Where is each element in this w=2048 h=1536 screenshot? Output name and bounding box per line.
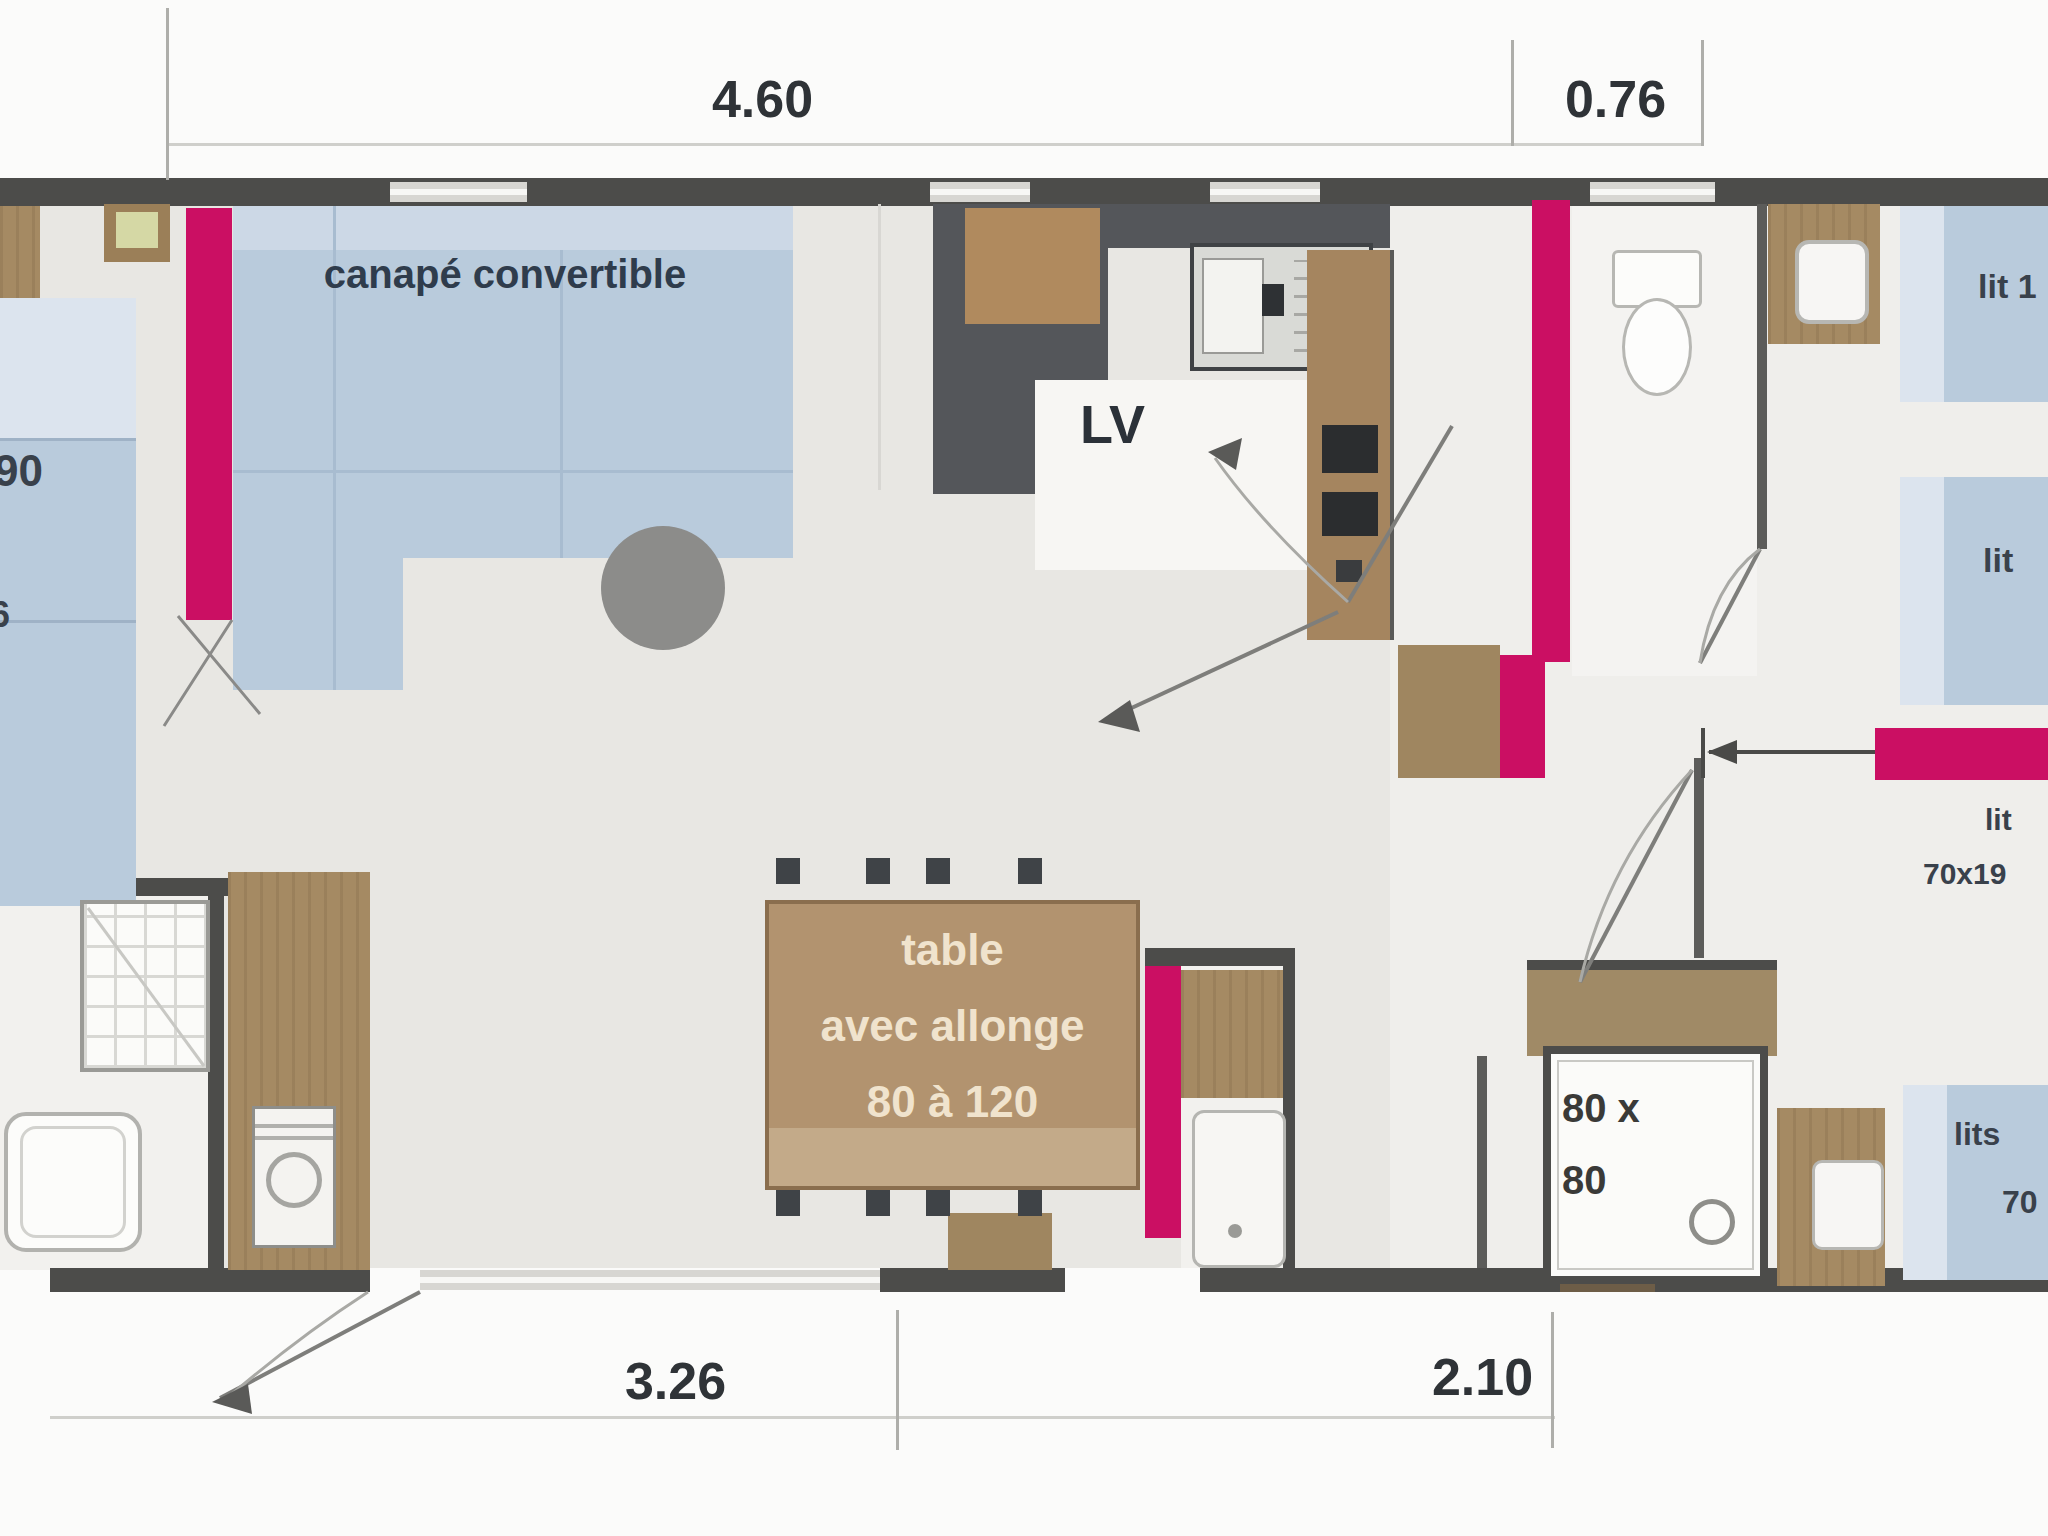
door-swing-left-bedroom <box>164 616 260 726</box>
door-leaf-hall-b <box>1110 612 1338 718</box>
door-leaf-hall-a <box>1348 426 1452 602</box>
door-leaf-entrance <box>220 1292 420 1398</box>
door-swing-overlay <box>0 0 2048 1536</box>
floor-plan: LV ✳ lit 1 lit lit 70x19 80 x 80 lits 70 <box>0 0 2048 1536</box>
door-arrow-hall-a <box>1208 438 1242 470</box>
shower-left-diagonal <box>88 908 204 1066</box>
door-arc-entrance <box>232 1292 368 1394</box>
bed-dim-arrow <box>1707 740 1737 764</box>
door-arc-hall-a <box>1215 458 1348 602</box>
door-arrow-entrance <box>212 1384 252 1414</box>
door-leaf-rear-bedroom <box>1580 770 1692 982</box>
door-leaf-wc <box>1700 549 1760 663</box>
